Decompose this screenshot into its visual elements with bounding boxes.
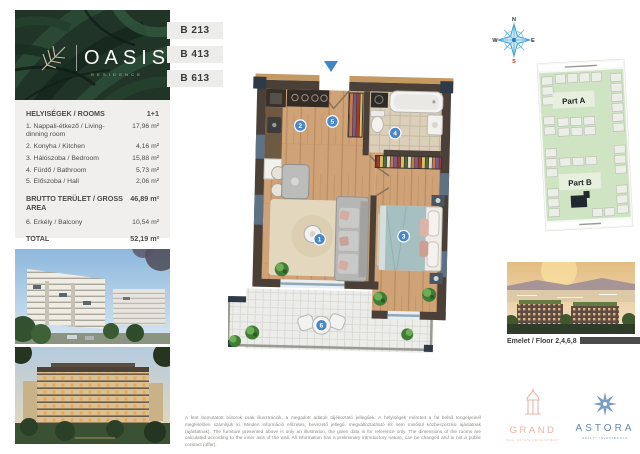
compass-s: S [512, 59, 516, 64]
floor-info-line: Emelet / Floor 2,4,6,8 [507, 336, 640, 346]
compass-rose: N E W S [492, 14, 536, 64]
rooms-config: 1+1 [147, 109, 159, 118]
room-row: 2. Konyha / Kitchen 4,16 m² [26, 143, 159, 151]
room-value: 2,06 m² [136, 178, 159, 186]
disclaimer-text: A fent bemutatott bútorok csak illusztrá… [185, 415, 481, 449]
entrance-arrow-icon [324, 61, 338, 72]
room-row: 3. Hálószoba / Bedroom 15,88 m² [26, 155, 159, 163]
total-value: 52,19 m² [130, 234, 159, 243]
leaf-icon [39, 44, 69, 72]
astora-name: ASTORA [571, 423, 639, 434]
disclaimer-en: The furniture presented above is only an… [185, 429, 481, 448]
compass-n: N [512, 17, 516, 23]
svg-text:4: 4 [393, 130, 397, 137]
site-map: Part A Part B [537, 59, 634, 231]
rooms-panel: HELYISÉGEK / ROOMS 1+1 1. Nappali-étkező… [15, 100, 170, 238]
logo-divider [76, 45, 77, 71]
svg-text:2: 2 [298, 123, 302, 130]
hall-shelf [348, 93, 363, 137]
svg-text:1: 1 [318, 236, 322, 243]
room-row: 5. Előszoba / Hall 2,06 m² [26, 178, 159, 186]
gross-value: 46,89 m² [130, 194, 159, 203]
unit-badge-b413[interactable]: B 413 [167, 46, 223, 63]
sofa [335, 197, 369, 282]
marker-bedroom: 3 [398, 230, 410, 242]
marker-hall: 5 [326, 116, 338, 128]
rooms-header-row: HELYISÉGEK / ROOMS 1+1 [26, 109, 159, 118]
room-value: 15,88 m² [132, 155, 159, 163]
grand-tagline: REAL ESTATE DEVELOPMENT [503, 438, 563, 442]
part-b-label: Part B [568, 178, 592, 188]
svg-text:3: 3 [402, 233, 406, 240]
brochure-page: OASIS RESIDENCE B 213 B 413 B 613 HELYIS… [0, 0, 640, 454]
astora-tagline: REALTY INVESTMENTS [571, 436, 639, 440]
room-label: 2. Konyha / Kitchen [26, 143, 85, 151]
room-value: 4,16 m² [136, 143, 159, 151]
floor-info-bar [580, 337, 640, 344]
compass-icon: N E W S [492, 14, 536, 64]
bedroom-shelf [375, 156, 441, 170]
grand-tower-icon [522, 388, 544, 418]
room-value: 17,96 m² [132, 123, 159, 131]
balcony-value: 10,54 m² [132, 219, 159, 227]
grand-logo: GRAND REAL ESTATE DEVELOPMENT [503, 388, 563, 446]
gross-area-row: BRUTTO TERÜLET / GROSS AREA 46,89 m² [26, 194, 159, 212]
brand-hero-card: OASIS RESIDENCE [15, 10, 170, 100]
marker-balcony: 6 [315, 319, 327, 331]
total-label: TOTAL [26, 234, 49, 243]
svg-text:6: 6 [320, 322, 324, 329]
room-label: 5. Előszoba / Hall [26, 178, 79, 186]
room-row: 1. Nappali-étkező / Living-dinning room … [26, 123, 159, 140]
room-label: 3. Hálószoba / Bedroom [26, 155, 99, 163]
astora-logo: ASTORA REALTY INVESTMENTS [571, 392, 639, 446]
brand-logo: OASIS [39, 44, 170, 72]
site-map-svg: Part A Part B [537, 59, 634, 231]
floor-info-text: Emelet / Floor 2,4,6,8 [507, 338, 577, 345]
building-render-evening [15, 347, 170, 444]
marker-kitchen: 2 [294, 120, 306, 132]
compass-w: W [492, 38, 498, 44]
svg-text:5: 5 [330, 119, 334, 126]
rooms-header: HELYISÉGEK / ROOMS [26, 109, 105, 118]
compass-e: E [531, 38, 535, 44]
room-row: 4. Fürdő / Bathroom 5,73 m² [26, 167, 159, 175]
aerial-render-sunset [507, 262, 635, 334]
grand-name: GRAND [503, 425, 563, 436]
gross-label: BRUTTO TERÜLET / GROSS AREA [26, 194, 124, 212]
bed [379, 206, 443, 271]
floor-plan: 1 2 3 4 5 6 [228, 55, 480, 385]
balcony-row: 6. Erkély / Balcony 10,54 m² [26, 219, 159, 227]
brand-subtitle: RESIDENCE [91, 72, 143, 77]
room-label: 4. Fürdő / Bathroom [26, 167, 86, 175]
room-label: 1. Nappali-étkező / Living-dinning room [26, 123, 124, 140]
marker-bathroom: 4 [389, 127, 401, 139]
brand-name: OASIS [84, 47, 170, 70]
unit-badge-b613[interactable]: B 613 [167, 70, 223, 87]
astora-star-icon [593, 392, 617, 416]
balcony-label: 6. Erkély / Balcony [26, 219, 82, 227]
marker-living: 1 [314, 233, 326, 245]
floor-plan-svg: 1 2 3 4 5 6 [228, 55, 480, 385]
part-a-label: Part A [562, 96, 586, 106]
room-value: 5,73 m² [136, 167, 159, 175]
unit-badge-b213[interactable]: B 213 [167, 22, 223, 39]
building-render-day [15, 249, 170, 344]
total-row: TOTAL 52,19 m² [26, 234, 159, 243]
